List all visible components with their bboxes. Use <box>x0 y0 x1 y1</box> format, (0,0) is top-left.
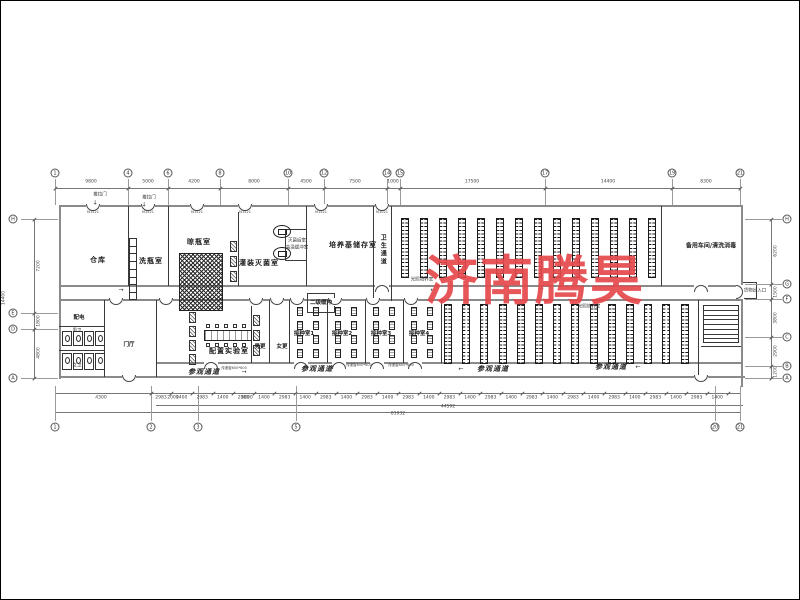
culture-rack <box>608 304 616 364</box>
axis-circle: 2 <box>147 423 156 432</box>
culture-rack <box>644 304 652 364</box>
dim-text: 8300 <box>700 181 711 186</box>
dim-text: 1400 <box>341 397 352 402</box>
dim-total: 14400 <box>3 291 8 305</box>
clean-bench <box>427 321 433 330</box>
dim-text: 4800 <box>38 347 43 358</box>
axis-circle: 15 <box>396 169 405 178</box>
axis-circle: 19 <box>668 169 677 178</box>
axis-circle: 4 <box>124 169 133 178</box>
room-label: 参观通道 <box>301 366 333 374</box>
partition-wall <box>289 300 290 363</box>
room-label: 备用车间/清洗消毒 <box>686 244 736 251</box>
dim-text: 1400 <box>217 397 228 402</box>
equipment-box <box>189 326 196 337</box>
dim-total: 81932 <box>391 413 405 418</box>
culture-rack <box>571 304 579 364</box>
dim-text: 1400 <box>299 397 310 402</box>
dim-text: 3800 <box>775 312 780 323</box>
dim-text: 1000 <box>387 181 398 186</box>
room-label: 卫生通道 <box>379 234 386 266</box>
axis-circle: H <box>9 215 18 224</box>
partition-wall <box>168 206 169 286</box>
drawing-sheet: 济南腾昊 14681012141517192198005000420080004… <box>0 0 800 600</box>
room-label: 传递窗600*600 <box>346 364 372 368</box>
floor-plan: 济南腾昊 14681012141517192198005000420080004… <box>1 1 799 599</box>
equipment-box <box>189 354 196 365</box>
clean-bench <box>351 349 357 358</box>
grid-line <box>715 386 716 421</box>
room-label: 参观通道 <box>188 369 220 377</box>
grid-line <box>745 284 782 285</box>
culture-rack <box>517 304 525 364</box>
clean-bench <box>335 321 341 330</box>
axis-circle: A <box>9 374 18 383</box>
partition-wall <box>661 206 662 286</box>
grid-line <box>672 179 673 205</box>
room-label: M1521 <box>142 211 154 215</box>
room-label: 男更 <box>254 344 265 350</box>
stair-step <box>703 315 739 316</box>
room-label: 二级缓冲 <box>310 300 332 306</box>
stair-step <box>703 319 739 320</box>
dim-text: 2983 <box>526 397 537 402</box>
grid-line <box>288 179 289 205</box>
culture-rack <box>553 304 561 364</box>
partition-wall <box>59 350 104 351</box>
partition-wall <box>307 312 335 313</box>
grid-line <box>545 179 546 205</box>
flow-arrow: ↓ <box>141 202 146 209</box>
shelf-cell <box>129 277 137 278</box>
door-mark <box>694 284 708 292</box>
toilet-stall <box>84 353 94 370</box>
room-label: 推拉门 <box>93 194 107 199</box>
toilet-stall <box>95 353 105 370</box>
flow-arrow: → <box>241 369 246 376</box>
room-label: M1021 <box>376 211 388 215</box>
clean-bench <box>389 349 395 358</box>
dim-text: 1400 <box>711 397 722 402</box>
grid-line <box>745 299 782 300</box>
clean-bench <box>373 349 379 358</box>
grid-line <box>55 179 56 205</box>
equipment-box <box>189 340 196 351</box>
shelf-cell <box>129 261 137 262</box>
grid-line <box>21 313 58 314</box>
grid-line <box>55 386 56 421</box>
lab-stool <box>206 324 210 328</box>
grid-line <box>21 378 58 379</box>
dim-text: 2983 <box>196 397 207 402</box>
flow-arrow: ← <box>635 364 640 371</box>
partition-wall <box>391 206 392 301</box>
lab-stool <box>242 324 246 328</box>
clean-bench <box>427 349 433 358</box>
culture-rack <box>499 304 507 364</box>
room-label: 女卫 <box>73 365 82 370</box>
flow-arrow: → <box>118 287 123 294</box>
dim-text: 17500 <box>465 181 479 186</box>
culture-rack <box>648 218 656 278</box>
room-label: 参观通道 <box>595 364 627 372</box>
flow-arrow: ← <box>458 366 463 373</box>
dim-text: 1800 <box>38 315 43 326</box>
shelf-cell <box>129 284 137 285</box>
dim-text: 7200 <box>38 260 43 271</box>
dim-text: 1400 <box>670 397 681 402</box>
axis-circle: 8 <box>216 169 225 178</box>
room-label: 高温缓冲室 <box>286 247 309 252</box>
room-label: 灌装灭菌室 <box>239 260 279 268</box>
clean-bench <box>411 321 417 330</box>
partition-wall <box>307 293 335 294</box>
dim-text: 2983 <box>155 397 166 402</box>
axis-circle: 3 <box>194 423 203 432</box>
toilet-stall <box>84 331 94 346</box>
door-mark <box>109 298 123 306</box>
door-mark <box>694 375 708 383</box>
stair-step <box>703 310 739 311</box>
lab-stool <box>224 324 228 328</box>
partition-wall <box>327 300 328 363</box>
shelving-block <box>179 253 223 311</box>
room-label: 门厅 <box>123 342 134 348</box>
door-mark <box>404 298 418 306</box>
axis-circle: 10 <box>284 169 293 178</box>
culture-rack <box>626 304 634 364</box>
clean-bench <box>313 307 319 316</box>
partition-wall <box>373 206 374 301</box>
room-label: 洗瓶室 <box>139 258 163 266</box>
dim-text: 7500 <box>349 181 360 186</box>
dim-text: 2983 <box>402 397 413 402</box>
equipment-box <box>189 312 196 323</box>
grid-line <box>21 329 58 330</box>
grid-line <box>21 219 58 220</box>
toilet-stall <box>95 331 105 346</box>
stair-step <box>703 329 739 330</box>
room-label: 女更 <box>276 344 287 350</box>
room-label: M1521 <box>87 211 99 215</box>
dim-text: 1400 <box>505 397 516 402</box>
partition-wall <box>701 346 741 347</box>
dim-text: 2983 <box>279 397 290 402</box>
dim-text: 1400 <box>588 397 599 402</box>
clean-bench <box>389 307 395 316</box>
dim-text: 2983 <box>485 397 496 402</box>
dim-text: 2983 <box>691 397 702 402</box>
room-label: 接种室3 <box>371 331 391 337</box>
room-label: 传递窗600*600 <box>388 364 414 368</box>
dim-text: 1400 <box>423 397 434 402</box>
grid-line <box>128 179 129 205</box>
clean-bench <box>411 307 417 316</box>
dim-total: 44592 <box>441 406 455 411</box>
axis-circle: 21 <box>736 169 745 178</box>
dim-text: 1400 <box>258 397 269 402</box>
dim-text: 6200 <box>775 245 780 256</box>
shelf-cell <box>129 246 137 247</box>
equipment-box <box>253 315 260 326</box>
room-label: 配电 <box>73 315 84 321</box>
dim-text: 5000 <box>142 181 153 186</box>
room-label: 接种室4 <box>409 331 429 337</box>
grid-line <box>168 179 169 205</box>
axis-circle: H <box>783 215 792 224</box>
partition-wall <box>59 326 104 327</box>
door-mark <box>366 298 380 306</box>
room-label: 培养基储存室 <box>329 242 377 250</box>
room-label: 接种室1 <box>294 331 314 337</box>
wall <box>61 205 743 207</box>
dim-text: 4500 <box>300 181 311 186</box>
dim-text: 2983 <box>320 397 331 402</box>
partition-wall <box>285 260 306 261</box>
equipment-box <box>230 271 237 282</box>
culture-rack <box>590 304 598 364</box>
clean-bench <box>351 321 357 330</box>
door-mark <box>122 375 136 383</box>
partition-wall <box>743 282 757 283</box>
dim-text: 1400 <box>547 397 558 402</box>
door-mark <box>270 298 284 306</box>
clean-bench <box>389 321 395 330</box>
dim-text: 8000 <box>248 181 259 186</box>
culture-rack <box>662 304 670 364</box>
door-mark <box>332 361 346 369</box>
toilet-stall <box>62 353 72 370</box>
axis-circle: 12 <box>320 169 329 178</box>
dim-text: 1400 <box>176 397 187 402</box>
clean-bench <box>373 321 379 330</box>
stair-step <box>703 334 739 335</box>
lab-bench <box>204 330 252 341</box>
dim-text: 1400 <box>629 397 640 402</box>
grid-line <box>220 179 221 205</box>
stair-step <box>703 324 739 325</box>
dim-text: 4200 <box>188 181 199 186</box>
axis-circle: 6 <box>164 169 173 178</box>
culture-rack <box>681 304 689 364</box>
shelf-cell <box>129 253 137 254</box>
axis-circle: 17 <box>541 169 550 178</box>
dim-text: 2983 <box>361 397 372 402</box>
room-label: 晾瓶室 <box>187 239 211 247</box>
room-label: 货物出入口 <box>744 290 767 295</box>
room-label: M1521 <box>315 211 327 215</box>
dim-text: 9800 <box>85 181 96 186</box>
axis-circle: 20 <box>711 423 720 432</box>
clean-bench <box>297 349 303 358</box>
culture-rack <box>535 304 543 364</box>
dim-text: 1500 <box>775 286 780 297</box>
equipment-box <box>230 256 237 267</box>
partition-wall <box>365 300 366 363</box>
wall <box>59 376 745 378</box>
room-label: M1521 <box>191 211 203 215</box>
equipment-box <box>230 241 237 252</box>
grid-line <box>324 179 325 205</box>
room-label: 灭菌后室 <box>288 240 306 245</box>
clean-bench <box>351 307 357 316</box>
clean-bench <box>373 307 379 316</box>
clean-bench <box>335 349 341 358</box>
culture-rack <box>401 218 409 278</box>
axis-circle: 1 <box>51 423 60 432</box>
dim-text: 1400 <box>464 397 475 402</box>
room-label: M1521 <box>239 211 251 215</box>
dim-text: 2983 <box>608 397 619 402</box>
partition-wall <box>403 300 404 363</box>
room-label: 配置实验室 <box>209 348 249 356</box>
shelf-cell <box>129 269 137 270</box>
culture-rack <box>462 304 470 364</box>
clean-bench <box>313 349 319 358</box>
partition-wall <box>156 300 157 377</box>
door-mark <box>249 298 263 306</box>
dim-text: 1400 <box>382 397 393 402</box>
culture-rack <box>444 304 452 364</box>
axis-circle: B <box>783 362 792 371</box>
axis-circle: F <box>783 295 792 304</box>
room-label: 男卫 <box>73 330 82 335</box>
axis-circle: 5 <box>292 423 301 432</box>
lab-stool <box>233 324 237 328</box>
clean-bench <box>297 307 303 316</box>
axis-circle: G <box>783 280 792 289</box>
culture-rack <box>480 304 488 364</box>
partition-wall <box>307 293 308 312</box>
dimension-line <box>34 219 35 378</box>
axis-circle: 21 <box>736 423 745 432</box>
toilet-stall <box>62 331 72 346</box>
shelf-cell <box>129 292 137 293</box>
dim-text: 4300 <box>95 397 106 402</box>
partition-wall <box>238 206 239 286</box>
partition-wall <box>269 300 270 363</box>
dim-text: 2983 <box>567 397 578 402</box>
grid-line <box>745 337 782 338</box>
dim-text: 2983 <box>238 397 249 402</box>
grid-line <box>198 386 199 421</box>
clean-bench <box>313 321 319 330</box>
autoclave <box>273 225 291 238</box>
axis-circle: 1 <box>51 169 60 178</box>
watermark: 济南腾昊 <box>425 253 645 311</box>
door-mark <box>290 298 304 306</box>
axis-circle: 14 <box>383 169 392 178</box>
door-mark <box>159 298 173 306</box>
stair-step <box>703 338 739 339</box>
room-label: 仓库 <box>90 257 106 265</box>
dim-text: 1200 <box>775 366 780 377</box>
grid-line <box>745 378 782 379</box>
lab-stool <box>215 324 219 328</box>
clean-bench <box>335 307 341 316</box>
axis-circle: E <box>9 309 18 318</box>
clean-bench <box>297 321 303 330</box>
grid-line <box>740 386 741 421</box>
grid-line <box>745 219 782 220</box>
dim-text: 2983 <box>650 397 661 402</box>
room-label: 参观通道 <box>477 366 509 374</box>
axis-circle: D <box>9 325 18 334</box>
grid-line <box>400 179 401 205</box>
axis-circle: A <box>783 374 792 383</box>
dim-text: 2983 <box>444 397 455 402</box>
room-label: 接种室2 <box>332 331 352 337</box>
partition-wall <box>698 300 699 377</box>
grid-line <box>740 179 741 205</box>
dim-text: 2900 <box>775 345 780 356</box>
axis-circle: C <box>783 333 792 342</box>
dim-text: 14400 <box>601 181 615 186</box>
flow-arrow: ↓ <box>92 200 97 207</box>
clean-bench <box>411 349 417 358</box>
door-mark <box>375 284 389 292</box>
equipment-box <box>253 330 260 341</box>
